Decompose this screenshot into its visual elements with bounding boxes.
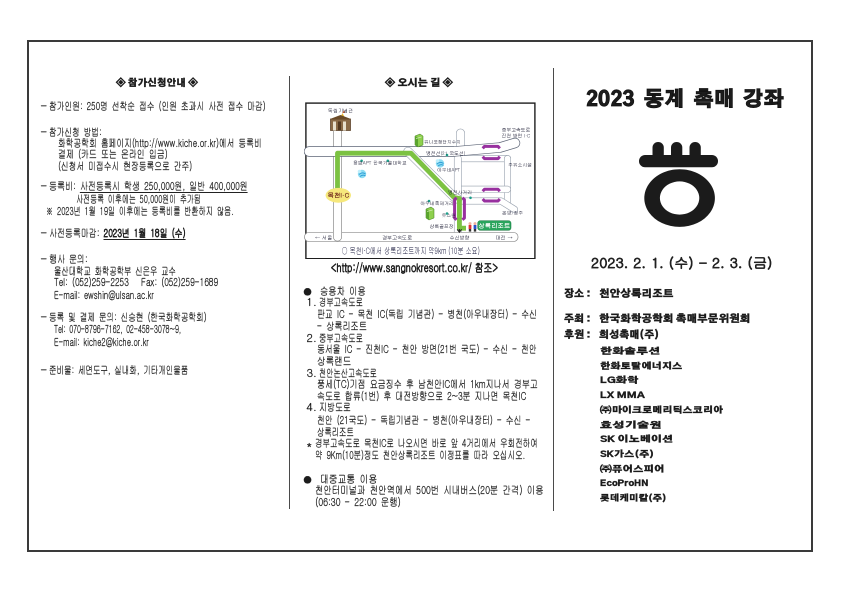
svg-text:수신방향: 수신방향 — [449, 234, 470, 241]
svg-text:경부고속도로: 경부고속도로 — [382, 234, 413, 241]
svg-text:용암APT 한국기술대학교: 용암APT 한국기술대학교 — [353, 161, 407, 167]
svg-text:병천선(21 국도선): 병천선(21 국도선) — [426, 150, 466, 157]
svg-text:상록리조트: 상록리조트 — [478, 221, 511, 230]
svg-text:목천I·C: 목천I·C — [328, 191, 350, 200]
svg-text:주유소시설: 주유소시설 — [508, 163, 532, 169]
svg-text:← 서울: ← 서울 — [315, 234, 333, 241]
svg-text:대전 →: 대전 → — [495, 234, 512, 241]
svg-text:상록골프장: 상록골프장 — [430, 224, 454, 230]
svg-text:유니코정단지수지: 유니코정단지수지 — [424, 140, 461, 146]
svg-text:병천사거리: 병천사거리 — [448, 190, 472, 196]
svg-text:아우네축제거리: 아우네축제거리 — [420, 201, 454, 207]
svg-text:온양/청주: 온양/청주 — [502, 210, 523, 217]
svg-text:아우네APT: 아우네APT — [437, 168, 461, 174]
svg-text:유스원: 유스원 — [442, 213, 457, 219]
svg-text:진천 방면 I·C: 진천 방면 I·C — [502, 134, 531, 140]
svg-text:독립기념관: 독립기념관 — [328, 108, 353, 115]
svg-text:○ 목천I·C에서 상록리조트까지 약9km (10분 소요: ○ 목천I·C에서 상록리조트까지 약9km (10분 소요) — [342, 244, 480, 257]
